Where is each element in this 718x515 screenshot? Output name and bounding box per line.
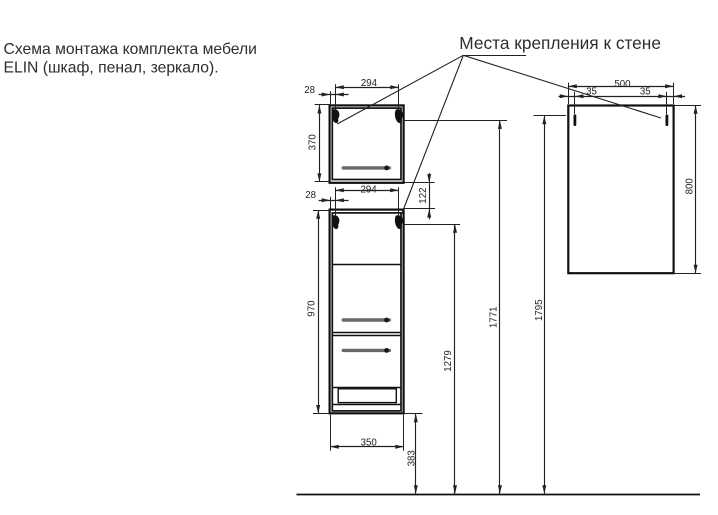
- svg-text:28: 28: [304, 85, 315, 96]
- svg-text:Схема монтажа комплекта мебели: Схема монтажа комплекта мебели: [4, 41, 257, 58]
- svg-text:800: 800: [684, 178, 695, 195]
- svg-text:1279: 1279: [443, 350, 454, 372]
- svg-text:Места крепления к стене: Места крепления к стене: [459, 33, 661, 53]
- svg-text:970: 970: [306, 300, 317, 317]
- svg-text:294: 294: [361, 184, 378, 195]
- svg-text:350: 350: [361, 438, 378, 449]
- svg-text:294: 294: [361, 78, 378, 89]
- svg-text:1771: 1771: [488, 306, 499, 328]
- svg-text:370: 370: [307, 134, 318, 151]
- svg-text:ELIN (шкаф, пенал, зеркало).: ELIN (шкаф, пенал, зеркало).: [4, 60, 219, 77]
- svg-text:35: 35: [586, 86, 597, 97]
- svg-text:28: 28: [305, 190, 316, 201]
- svg-text:122: 122: [418, 188, 429, 204]
- svg-text:1795: 1795: [534, 299, 545, 321]
- svg-text:35: 35: [640, 86, 651, 97]
- svg-text:500: 500: [614, 79, 631, 90]
- svg-text:383: 383: [406, 450, 417, 466]
